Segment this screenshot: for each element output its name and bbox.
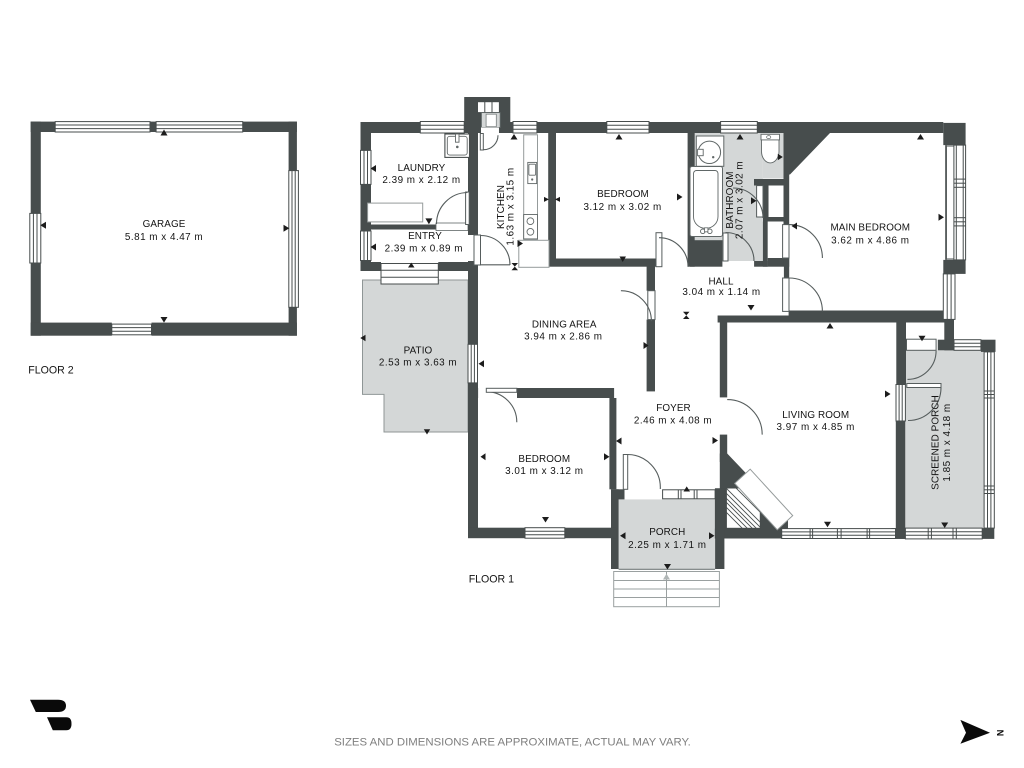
svg-text:GARAGE: GARAGE (143, 219, 186, 230)
svg-text:ENTRY: ENTRY (408, 231, 442, 242)
svg-text:3.97 m x 4.85 m: 3.97 m x 4.85 m (777, 422, 855, 433)
svg-text:FLOOR 1: FLOOR 1 (469, 574, 514, 586)
svg-text:2.46 m x 4.08 m: 2.46 m x 4.08 m (634, 415, 712, 426)
svg-text:2.07 m x 3.02 m: 2.07 m x 3.02 m (735, 161, 746, 239)
svg-text:3.04 m x 1.14 m: 3.04 m x 1.14 m (682, 287, 760, 298)
svg-text:FOYER: FOYER (656, 403, 691, 414)
svg-text:SCREENED PORCH: SCREENED PORCH (931, 395, 942, 490)
svg-text:N: N (995, 730, 1005, 737)
svg-text:BEDROOM: BEDROOM (518, 454, 570, 465)
svg-text:3.01 m x 3.12 m: 3.01 m x 3.12 m (505, 466, 583, 477)
svg-text:BEDROOM: BEDROOM (597, 189, 649, 200)
svg-text:2.39 m x 2.12 m: 2.39 m x 2.12 m (382, 175, 460, 186)
svg-text:2.25 m x 1.71 m: 2.25 m x 1.71 m (628, 540, 706, 551)
svg-text:1.85 m x 4.18 m: 1.85 m x 4.18 m (942, 403, 953, 481)
svg-text:DINING AREA: DINING AREA (532, 319, 597, 330)
svg-text:1.63 m x 3.15 m: 1.63 m x 3.15 m (505, 167, 516, 245)
svg-text:3.94 m x 2.86 m: 3.94 m x 2.86 m (524, 331, 602, 342)
svg-text:3.12 m x 3.02 m: 3.12 m x 3.02 m (583, 202, 661, 213)
svg-text:5.81 m x 4.47 m: 5.81 m x 4.47 m (125, 232, 203, 243)
svg-text:HALL: HALL (708, 276, 734, 287)
svg-text:LAUNDRY: LAUNDRY (398, 163, 446, 174)
svg-text:PATIO: PATIO (404, 346, 433, 357)
svg-text:LIVING ROOM: LIVING ROOM (782, 410, 849, 421)
svg-text:2.39 m x 0.89 m: 2.39 m x 0.89 m (385, 243, 463, 254)
svg-text:MAIN BEDROOM: MAIN BEDROOM (830, 222, 910, 233)
svg-text:3.62 m x 4.86 m: 3.62 m x 4.86 m (831, 235, 909, 246)
svg-text:2.53 m x 3.63 m: 2.53 m x 3.63 m (379, 358, 457, 369)
svg-text:FLOOR 2: FLOOR 2 (28, 365, 73, 377)
svg-text:PORCH: PORCH (649, 527, 685, 538)
svg-text:SIZES AND DIMENSIONS ARE APPRO: SIZES AND DIMENSIONS ARE APPROXIMATE, AC… (334, 737, 691, 749)
